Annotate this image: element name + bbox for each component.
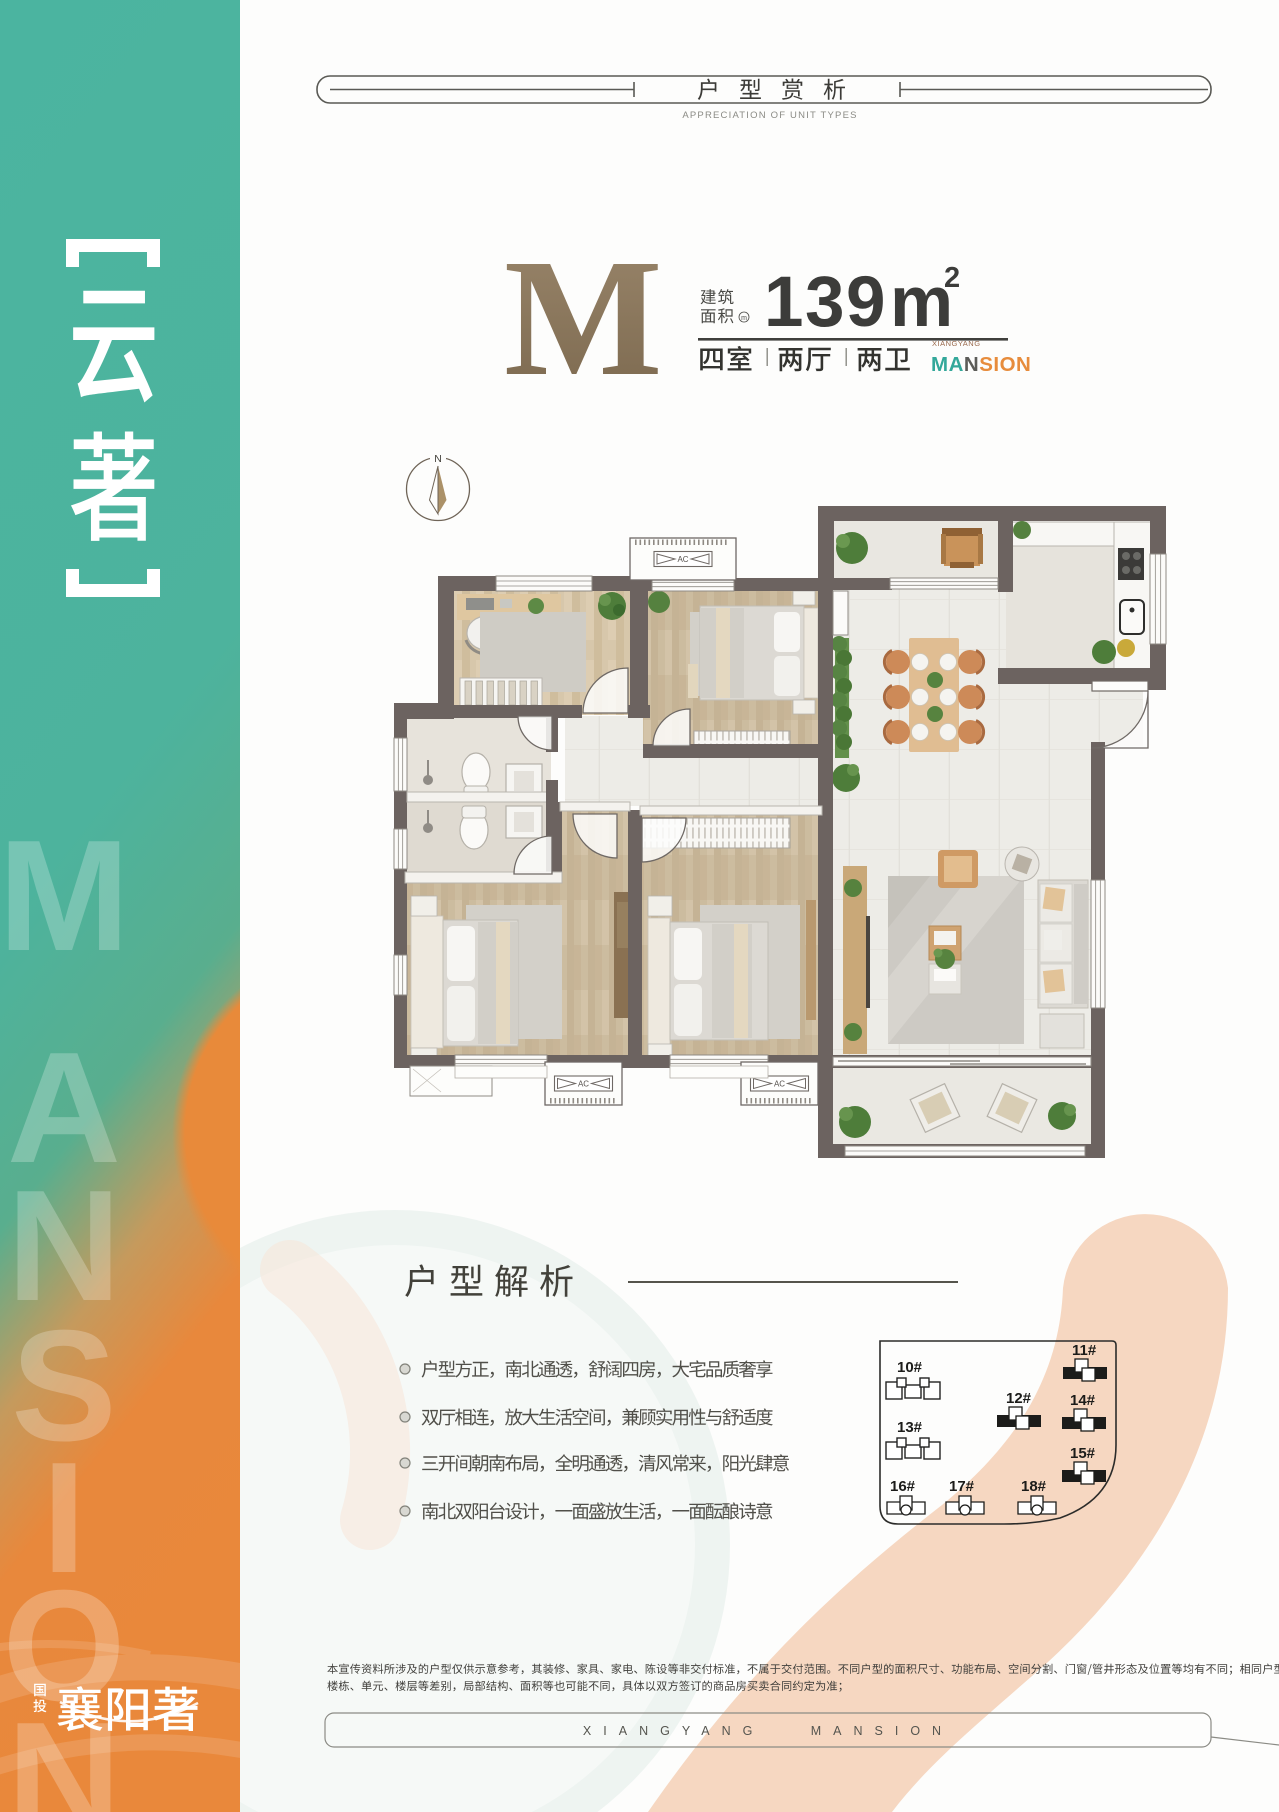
svg-text:XIANGYANG: XIANGYANG [932,339,981,348]
svg-text:2: 2 [944,262,960,294]
svg-text:14#: 14# [1070,1392,1096,1409]
svg-text:N: N [434,453,442,465]
svg-text:APPRECIATION OF UNIT TYPES: APPRECIATION OF UNIT TYPES [682,110,857,121]
svg-text:13#: 13# [897,1419,923,1436]
svg-text:M: M [0,808,130,984]
svg-text:AC: AC [578,1080,589,1089]
svg-text:17#: 17# [949,1478,975,1495]
svg-text:12#: 12# [1006,1390,1032,1407]
svg-text:11#: 11# [1072,1342,1097,1359]
svg-text:AC: AC [774,1080,785,1089]
svg-text:18#: 18# [1021,1478,1047,1495]
svg-text:m: m [741,315,747,322]
svg-text:10#: 10# [897,1359,923,1376]
svg-text:15#: 15# [1070,1445,1096,1462]
svg-text:AC: AC [677,555,688,564]
svg-text:XIANGYANG MANSION: XIANGYANG MANSION [583,1724,953,1738]
svg-text:MANSION: MANSION [931,353,1031,376]
svg-text:139m: 139m [764,263,955,342]
svg-text:M: M [504,225,663,411]
svg-text:16#: 16# [890,1478,916,1495]
